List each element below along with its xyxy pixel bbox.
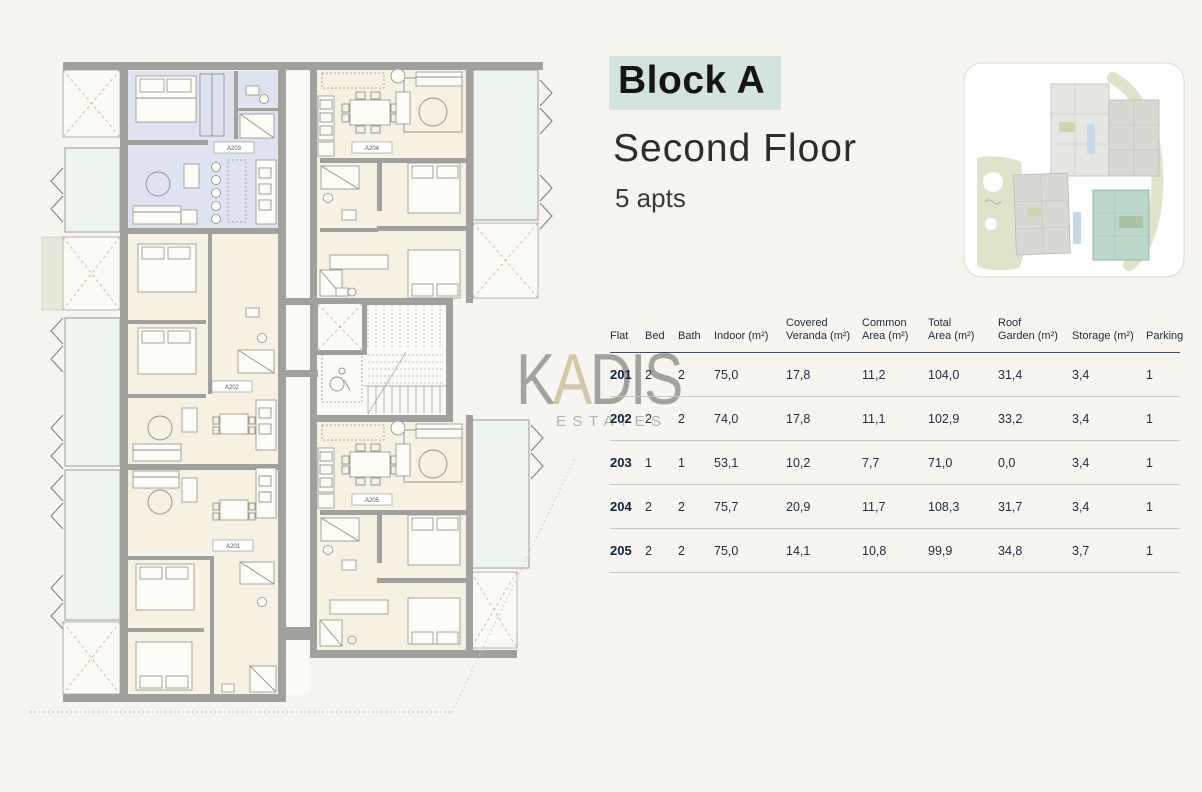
cell-flat: 201 [610,367,645,382]
cell-bed: 2 [645,544,678,558]
cell-common: 11,1 [862,412,928,426]
table-row: 205 2 2 75,0 14,1 10,8 99,9 34,8 3,7 1 [610,529,1180,573]
apartment-label: A201 [226,544,241,550]
cell-bath: 2 [678,500,714,514]
cell-parking: 1 [1146,368,1180,382]
cell-bath: 2 [678,544,714,558]
cell-flat: 203 [610,455,645,470]
table-row: 202 2 2 74,0 17,8 11,1 102,9 33,2 3,4 1 [610,397,1180,441]
elevator [313,299,367,355]
table-row: 201 2 2 75,0 17,8 11,2 104,0 31,4 3,4 1 [610,353,1180,397]
cell-veranda: 20,9 [786,500,862,514]
building-block-a-highlight [1093,190,1149,260]
cell-storage: 3,4 [1072,368,1146,382]
cell-storage: 3,4 [1072,456,1146,470]
apartment-spec-table: Flat Bed Bath Indoor (m²) Covered Verand… [610,307,1180,573]
cell-total: 104,0 [928,368,998,382]
table-header-row: Flat Bed Bath Indoor (m²) Covered Verand… [610,307,1180,353]
cell-parking: 1 [1146,412,1180,426]
apartment-count: 5 apts [615,183,686,214]
col-header-flat: Flat [610,330,645,343]
brochure-page: A203 [0,0,1202,792]
cell-indoor: 53,1 [714,456,786,470]
left-balconies [42,70,120,694]
apartment-label: A202 [225,385,240,391]
col-header-indoor: Indoor (m²) [714,330,786,343]
cell-roof: 33,2 [998,412,1072,426]
table-row: 204 2 2 75,7 20,9 11,7 108,3 31,7 3,4 1 [610,485,1180,529]
col-header-bath: Bath [678,330,714,343]
building-top-right [1109,100,1159,176]
col-header-bed: Bed [645,330,678,343]
cell-parking: 1 [1146,500,1180,514]
cell-bath: 2 [678,368,714,382]
cell-bath: 1 [678,456,714,470]
col-header-veranda: Covered Veranda (m²) [786,317,862,343]
cell-storage: 3,4 [1072,412,1146,426]
cell-bed: 1 [645,456,678,470]
apartment-label: A203 [227,146,242,152]
pool-lower [1073,212,1081,244]
cell-flat: 202 [610,411,645,426]
apartment-label: A204 [365,146,380,152]
block-title: Block A [609,56,781,110]
table-row: 203 1 1 53,1 10,2 7,7 71,0 0,0 3,4 1 [610,441,1180,485]
floor-plan: A203 [0,0,600,730]
cell-indoor: 75,7 [714,500,786,514]
cell-roof: 0,0 [998,456,1072,470]
cell-common: 10,8 [862,544,928,558]
col-header-roof: Roof Garden (m²) [998,317,1072,343]
cell-bath: 2 [678,412,714,426]
cell-indoor: 74,0 [714,412,786,426]
cell-bed: 2 [645,412,678,426]
cell-total: 99,9 [928,544,998,558]
site-plan-thumbnail [963,62,1185,278]
pool-upper [1087,124,1095,154]
cell-total: 102,9 [928,412,998,426]
cell-roof: 31,7 [998,500,1072,514]
cell-flat: 205 [610,543,645,558]
cell-veranda: 14,1 [786,544,862,558]
cell-parking: 1 [1146,456,1180,470]
col-header-storage: Storage (m²) [1072,330,1146,343]
cell-bed: 2 [645,368,678,382]
cell-total: 71,0 [928,456,998,470]
floor-title: Second Floor [613,127,857,171]
cell-indoor: 75,0 [714,368,786,382]
cell-veranda: 17,8 [786,368,862,382]
apartment-label: A205 [365,498,380,504]
col-header-total: Total Area (m²) [928,317,998,343]
col-header-parking: Parking [1146,330,1180,343]
cell-storage: 3,4 [1072,500,1146,514]
cell-common: 7,7 [862,456,928,470]
cell-flat: 204 [610,499,645,514]
cell-common: 11,2 [862,368,928,382]
watermark-a: A [553,340,590,420]
cell-parking: 1 [1146,544,1180,558]
cell-storage: 3,7 [1072,544,1146,558]
col-header-common: Common Area (m²) [862,317,928,343]
cell-common: 11,7 [862,500,928,514]
cell-total: 108,3 [928,500,998,514]
cell-veranda: 10,2 [786,456,862,470]
cell-roof: 31,4 [998,368,1072,382]
cell-indoor: 75,0 [714,544,786,558]
building-top-center [1051,84,1109,176]
watermark-k: K [516,340,553,420]
cell-bed: 2 [645,500,678,514]
building-lower-left [1014,173,1071,255]
cell-roof: 34,8 [998,544,1072,558]
cell-veranda: 17,8 [786,412,862,426]
